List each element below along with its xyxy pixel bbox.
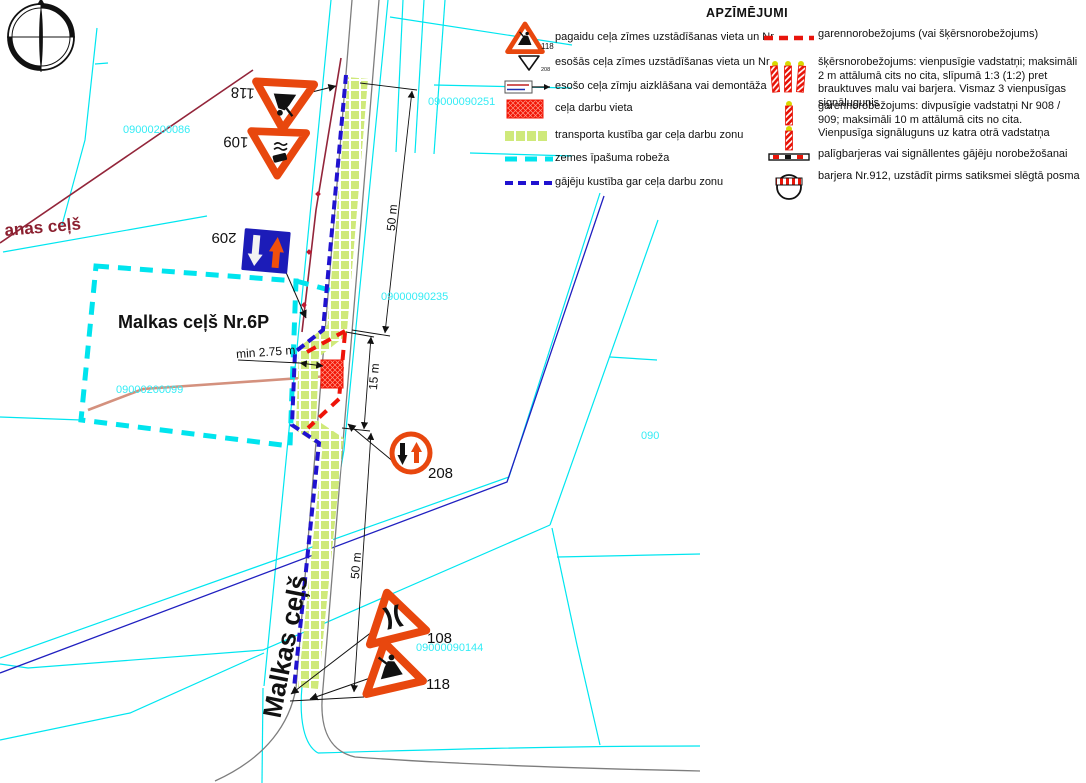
legend-row-existing-sign: 208 esošās ceļa zīmes uzstādīšanas vieta…	[503, 52, 770, 74]
sign-label-109: 109	[223, 133, 249, 151]
barrier-912-icon	[760, 170, 818, 202]
property-boundary-icon	[503, 152, 555, 166]
legend-label: garennorobežojums (vai šķērsnorobežojums…	[818, 28, 1080, 42]
legend-label: gājēju kustība gar ceļa darbu zonu	[555, 176, 723, 190]
legend-row-temporary-sign: 118 pagaidu ceļa zīmes uzstādīšanas viet…	[503, 22, 774, 54]
legend-label: transporta kustība gar ceļa darbu zonu	[555, 129, 743, 143]
cadastral-090: 090	[641, 430, 659, 442]
temporary-sign-209	[241, 228, 290, 274]
work-area-rect	[321, 360, 343, 388]
cadastral-09000200099: 09000200099	[116, 384, 183, 396]
legend-label: ceļa darbu vieta	[555, 102, 633, 116]
legend-label: pagaidu ceļa zīmes uzstādīšanas vieta un…	[555, 31, 774, 45]
legend-row-guide-posts-two: garennorobežojums: divpusīgie vadstatņi …	[760, 100, 1080, 152]
legend-title: APZĪMĒJUMI	[706, 6, 788, 20]
parcel-road-name: Malkas ceļš Nr.6P	[118, 312, 269, 332]
pedestrian-route-icon	[503, 176, 555, 190]
longitudinal-barrier-line-icon	[760, 28, 818, 48]
covered-sign-icon	[503, 77, 555, 97]
work-area-icon	[503, 98, 555, 120]
traffic-strip-icon	[503, 127, 555, 145]
dimension-15m: 15 m	[366, 363, 382, 391]
auxiliary-barrier-icon	[760, 148, 818, 166]
legend-label: garennorobežojums: divpusīgie vadstatņi …	[818, 100, 1080, 141]
svg-text:208: 208	[541, 67, 550, 73]
legend-row-barrier-912: barjera Nr.912, uzstādīt pirms satiksmei…	[760, 170, 1080, 202]
sign-label-208: 208	[428, 465, 453, 482]
legend-label: esošo ceļa zīmju aizklāšana vai demontāž…	[555, 80, 767, 94]
legend-row-pedestrian-route: gājēju kustība gar ceļa darbu zonu	[503, 172, 723, 194]
temporary-sign-118-top	[254, 82, 314, 131]
cadastral-09000090144: 09000090144	[416, 642, 483, 654]
legend-row-traffic-strip: transporta kustība gar ceļa darbu zonu	[503, 124, 743, 148]
roadworks-traffic-plan: 50 m 15 m 50 m min 2.75 m 118 109	[0, 0, 1086, 783]
temporary-sign-109	[250, 131, 307, 177]
cadastral-09000090235: 09000090235	[381, 291, 448, 303]
road-name-left: anas ceļš	[4, 214, 82, 240]
sign-label-209: 209	[211, 229, 236, 246]
temporary-sign-108	[359, 586, 426, 645]
cadastral-09000090251: 09000090251	[428, 96, 495, 108]
legend-label: barjera Nr.912, uzstādīt pirms satiksmei…	[818, 170, 1080, 184]
legend-label: palīgbarjeras vai signāllentes gājēju no…	[818, 148, 1080, 162]
dimension-50m-top: 50 m	[384, 204, 400, 232]
compass-rose-icon	[7, 0, 75, 72]
legend-row-longitudinal-barrier: garennorobežojums (vai šķērsnorobežojums…	[760, 28, 1080, 48]
legend-row-property-boundary: zemes īpašuma robeža	[503, 148, 669, 170]
legend-row-work-area: ceļa darbu vieta	[503, 97, 633, 121]
existing-sign-icon: 208	[503, 52, 555, 74]
temporary-sign-208	[390, 432, 433, 475]
legend-row-auxiliary-barrier: palīgbarjeras vai signāllentes gājēju no…	[760, 148, 1080, 166]
sign-label-118-top: 118	[230, 83, 255, 101]
legend-row-covered-sign: esošo ceļa zīmju aizklāšana vai demontāž…	[503, 76, 767, 98]
cadastral-09000200086: 09000200086	[123, 124, 190, 136]
legend-label: zemes īpašuma robeža	[555, 152, 669, 166]
sign-label-118-bottom: 118	[426, 676, 450, 693]
temporary-sign-118-icon: 118	[503, 21, 555, 55]
min-width-label: min 2.75 m	[236, 343, 296, 361]
legend-label: esošās ceļa zīmes uzstādīšanas vieta un …	[555, 56, 770, 70]
svg-text:118: 118	[541, 42, 554, 51]
guide-posts-two-icon	[760, 100, 818, 152]
guide-posts-three-icon	[760, 56, 818, 98]
dimension-50m-bottom: 50 m	[348, 552, 364, 580]
